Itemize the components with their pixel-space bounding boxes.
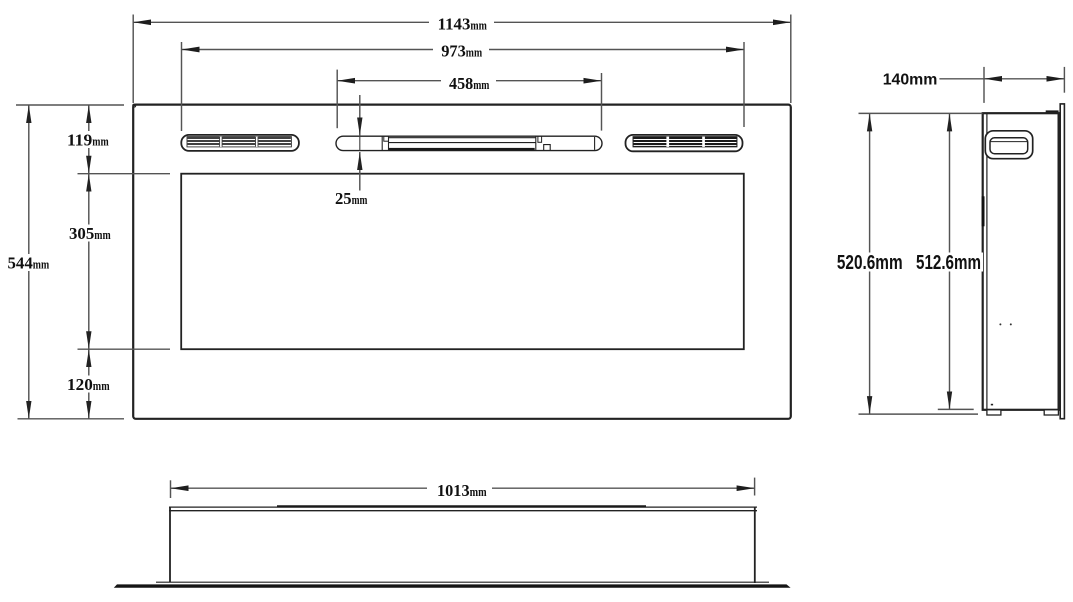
svg-text:140mm: 140mm: [883, 71, 938, 88]
svg-text:520.6mm: 520.6mm: [837, 251, 903, 274]
svg-text:512.6mm: 512.6mm: [916, 251, 981, 274]
